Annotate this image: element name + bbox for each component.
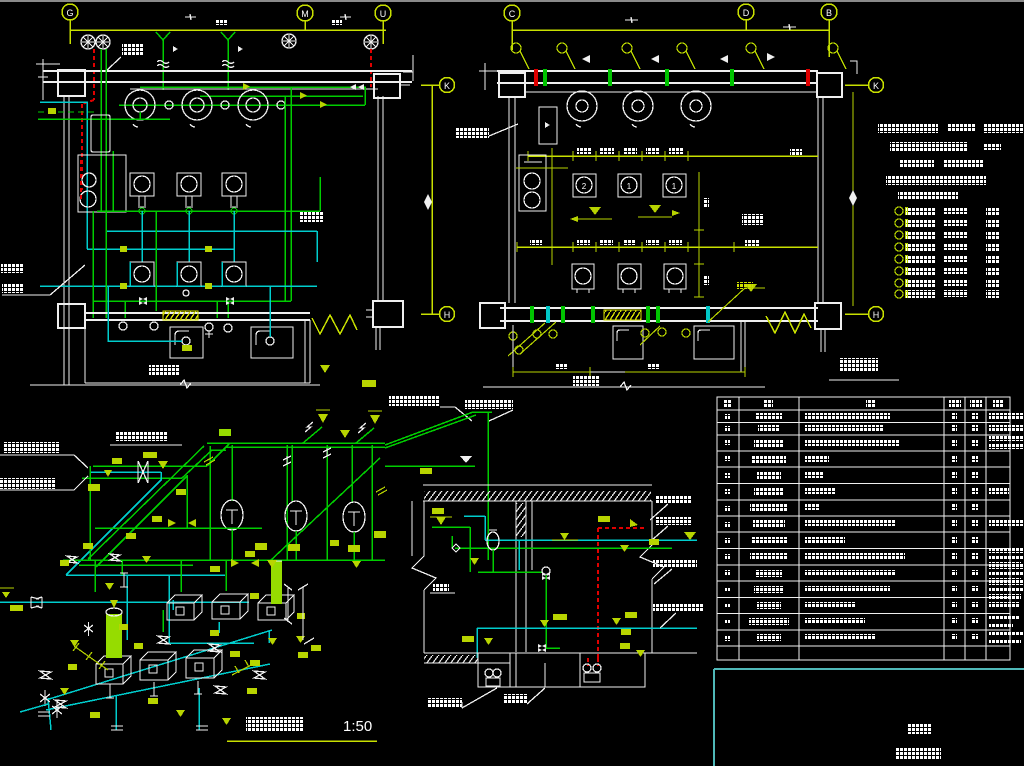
svg-text:B: B bbox=[826, 8, 832, 18]
svg-text:H: H bbox=[444, 310, 451, 320]
svg-text:C: C bbox=[509, 9, 516, 19]
svg-text:2: 2 bbox=[582, 182, 587, 191]
svg-text:1: 1 bbox=[627, 182, 632, 191]
svg-text:U: U bbox=[380, 9, 387, 19]
svg-text:G: G bbox=[66, 8, 73, 18]
svg-text:K: K bbox=[444, 81, 450, 91]
svg-text:D: D bbox=[743, 8, 750, 18]
svg-text:1: 1 bbox=[672, 182, 677, 191]
svg-text:K: K bbox=[873, 81, 879, 91]
svg-text:M: M bbox=[301, 9, 309, 19]
svg-text:H: H bbox=[873, 310, 880, 320]
svg-text:1:50: 1:50 bbox=[343, 718, 372, 735]
